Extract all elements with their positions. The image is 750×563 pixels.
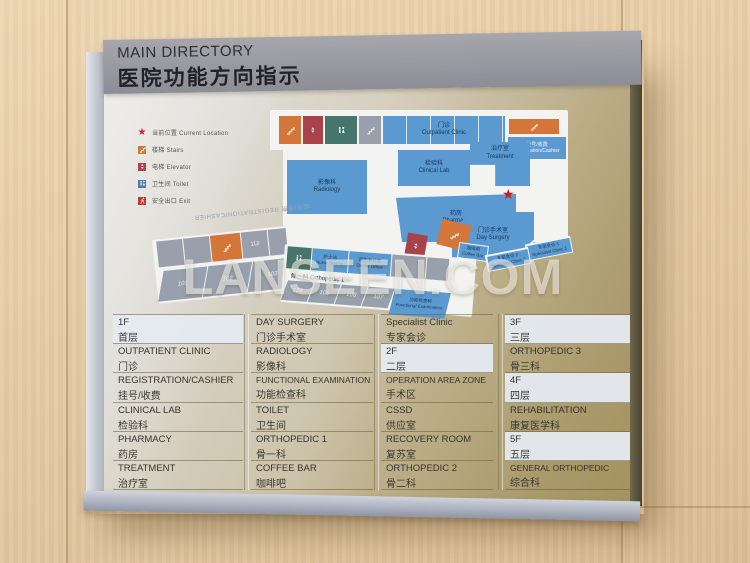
directory-cell-floor: 5F五层 [505,432,630,461]
directory-cell: REHABILITATION康复医学科 [505,403,630,432]
outpatient-clinic-block: 门诊Outpatient Clinic [383,116,505,144]
elevator-block [303,116,323,144]
title-bar: MAIN DIRECTORY 医院功能方向指示 [103,31,642,94]
directory-cell: ORTHOPEDIC 1骨一科 [251,432,373,461]
elevator-icon [309,126,317,134]
directory-column-1f: 1F首层 OUTPATIENT CLINIC门诊 REGISTRATION/CA… [113,314,243,490]
elevator-icon [138,163,146,171]
directory-table: 1F首层 OUTPATIENT CLINIC门诊 REGISTRATION/CA… [113,314,630,490]
directory-cell: GENERAL ORTHOPEDIC综合科 [505,461,630,490]
directory-cell-floor: 3F三层 [505,315,630,344]
toilet-block [325,116,357,144]
wood-seam [66,0,68,563]
directory-cell: CSSD供应室 [381,403,493,432]
directory-cell: PHARMACY药房 [113,432,243,461]
directory-cell-floor: 4F四层 [505,373,630,402]
directory-cell: Specialist Clinic专家会诊 [381,315,493,344]
directory-cell: ORTHOPEDIC 2骨二科 [381,461,493,490]
sign-right-edge [630,40,642,506]
directory-cell: COFFEE BAR咖啡吧 [251,461,373,490]
directory-cell: REGISTRATION/CASHIER挂号/收费 [113,373,243,402]
directory-cell: TREATMENT治疗室 [113,461,243,490]
directory-cell: CLINICAL LAB检验科 [113,403,243,432]
directory-cell-floor: 1F首层 [113,315,243,344]
directory-cell: OUTPATIENT CLINIC门诊 [113,344,243,373]
exit-icon [138,197,146,205]
watermark: LANSEEN.COM [168,248,578,306]
stairs-block [359,116,381,144]
stairs-icon [138,146,146,154]
directory-cell: RADIOLOGY影像科 [251,344,373,373]
stairs-icon [449,230,460,241]
directory-cell: RECOVERY ROOM复苏室 [381,432,493,461]
directory-cell: OPERATION AREA ZONE手术区 [381,373,493,402]
directory-column-3f-4f-5f: 3F三层 ORTHOPEDIC 3骨三科 4F四层 REHABILITATION… [505,314,630,490]
toilet-icon [337,126,346,135]
directory-cell-floor: 2F二层 [381,344,493,373]
toilet-icon [138,180,146,188]
directory-cell: ORTHOPEDIC 3骨三科 [505,344,630,373]
column-divider [244,314,249,490]
stairs-block [509,119,559,134]
directory-cell: TOILET卫生间 [251,403,373,432]
directory-cell: FUNCTIONAL EXAMINATION功能检查科 [251,373,373,402]
directory-cell: DAY SURGERY门诊手术室 [251,315,373,344]
column-divider [498,314,503,490]
current-location-star-icon: ★ [138,129,146,137]
directory-column-2f: Specialist Clinic专家会诊 2F二层 OPERATION ARE… [381,314,493,490]
clinical-lab-block: 检验科Clinical Lab [398,150,470,186]
column-divider [374,314,379,490]
stairs-icon [286,126,295,135]
directory-column-1f-cont: DAY SURGERY门诊手术室 RADIOLOGY影像科 FUNCTIONAL… [251,314,373,490]
stairs-block [279,116,301,144]
stairs-icon [530,123,538,131]
current-location-star: ★ [502,186,515,203]
stairs-icon [366,126,375,135]
photo-of-hospital-directory-sign: MAIN DIRECTORY 医院功能方向指示 ★ 当前位置 Current L… [0,0,750,563]
